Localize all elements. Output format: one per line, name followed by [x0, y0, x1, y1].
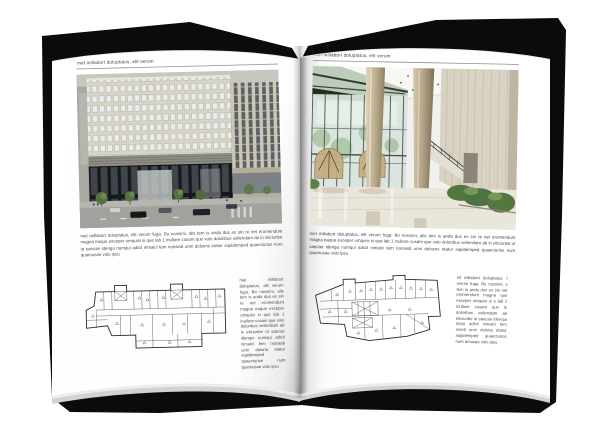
office-building-photo [76, 69, 282, 228]
left-column-text: met millabort doluptatus, alit verum fug… [239, 276, 285, 370]
main-facade [87, 74, 234, 207]
street [79, 196, 282, 228]
right-page-content: met millabort doluptatus, elit verum [307, 52, 519, 352]
side-building [230, 81, 281, 203]
floor-plan-right [307, 270, 446, 351]
left-bottom-row: met millabort doluptatus, alit verum fug… [81, 274, 285, 374]
room-markers [91, 294, 222, 345]
book-mockup: met millabort doluptatus, elit verum [0, 0, 600, 446]
floor-plan-left [81, 276, 231, 358]
left-page-content: met millabort doluptatus, elit verum [76, 56, 286, 375]
right-bottom-row: sit millabort doluptatus, t verum fuga. … [307, 270, 514, 352]
right-page: met millabort doluptatus, elit verum [300, 42, 550, 400]
right-body-text: met millabort doluptatus, elit verum fug… [309, 230, 515, 260]
right-column-text: sit millabort doluptatus, t verum fuga. … [455, 275, 507, 346]
left-body-text: met millabort doluptatus, elit verum fug… [80, 228, 283, 259]
lobby-interior-photo [310, 66, 519, 230]
right-page-header: met millabort doluptatus, elit verum [314, 52, 519, 61]
glass-curtain-wall [310, 94, 407, 196]
left-page: met millabort doluptatus, elit verum [52, 44, 300, 400]
